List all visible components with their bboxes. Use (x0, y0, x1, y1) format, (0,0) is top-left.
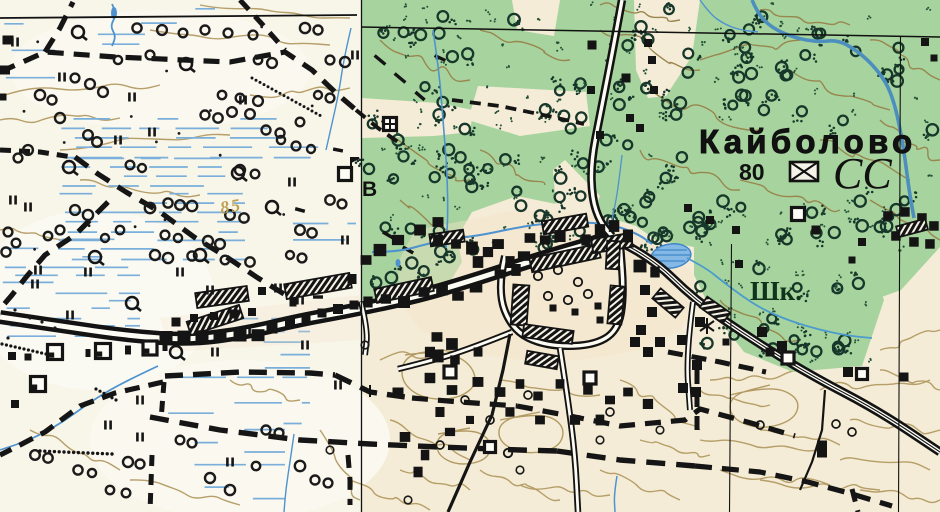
svg-text:Шк.: Шк. (750, 276, 802, 306)
svg-text:В: В (362, 178, 377, 201)
svg-text:СС: СС (833, 149, 892, 198)
svg-text:80: 80 (739, 159, 765, 185)
svg-text:85: 85 (218, 194, 243, 218)
